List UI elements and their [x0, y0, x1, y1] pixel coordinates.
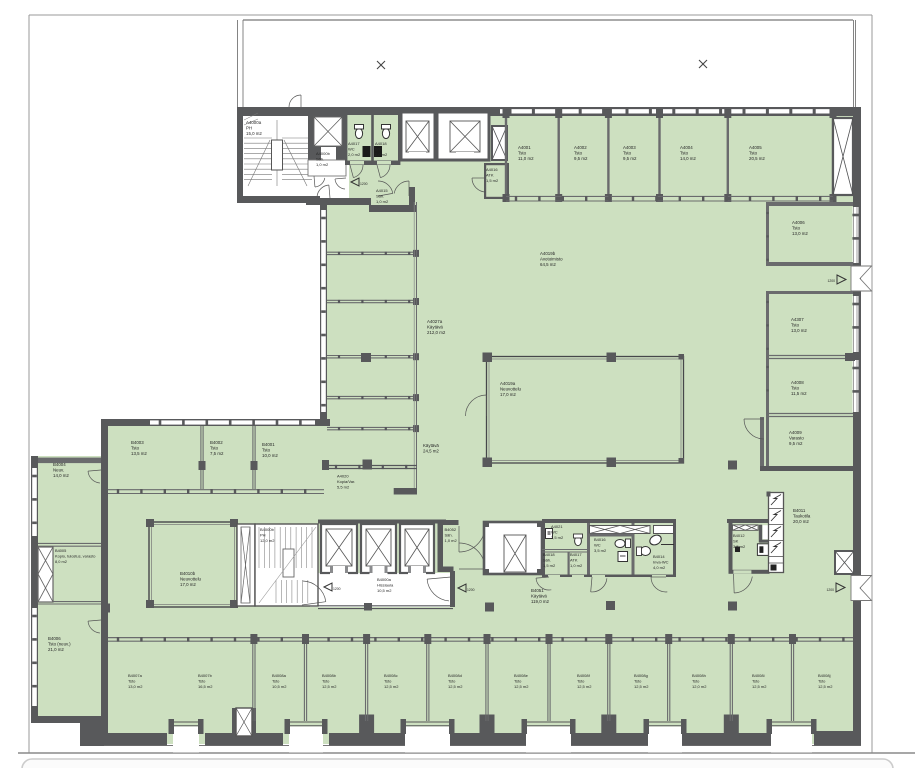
svg-text:A4002: A4002	[574, 145, 587, 150]
svg-text:A4027a: A4027a	[427, 319, 443, 324]
svg-text:Tsto: Tsto	[448, 679, 456, 684]
svg-text:B4008c: B4008c	[384, 673, 398, 678]
svg-text:Tsto: Tsto	[577, 679, 585, 684]
svg-text:2,5 m2: 2,5 m2	[551, 535, 564, 540]
svg-text:B4016: B4016	[594, 537, 606, 542]
svg-text:Säh.: Säh.	[376, 194, 384, 199]
svg-text:13,5 m2: 13,5 m2	[131, 451, 147, 456]
svg-text:WC: WC	[551, 530, 558, 535]
svg-text:10,0 m2: 10,0 m2	[262, 453, 278, 458]
svg-text:B4010b: B4010b	[180, 571, 196, 576]
svg-text:A4000a: A4000a	[246, 120, 262, 125]
svg-text:Neuv.: Neuv.	[53, 468, 64, 473]
svg-text:9,5 m2: 9,5 m2	[789, 441, 803, 446]
svg-text:B4001: B4001	[262, 442, 275, 447]
svg-text:20,0 m2: 20,0 m2	[793, 519, 809, 524]
svg-text:B4004: B4004	[53, 462, 66, 467]
svg-text:Tsto: Tsto	[623, 151, 632, 156]
svg-text:Tsto: Tsto	[574, 151, 583, 156]
svg-text:8,0 m2: 8,0 m2	[55, 559, 67, 564]
svg-text:SK: SK	[733, 539, 739, 544]
svg-text:B4008h: B4008h	[692, 673, 706, 678]
svg-text:Tsto: Tsto	[384, 679, 392, 684]
svg-text:12,5 m2: 12,5 m2	[634, 684, 649, 689]
svg-text:12,5 m2: 12,5 m2	[818, 684, 833, 689]
svg-text:1200: 1200	[360, 182, 368, 186]
svg-text:24,5 m2: 24,5 m2	[423, 449, 439, 454]
svg-text:Tsto: Tsto	[792, 226, 801, 231]
svg-text:Säh.: Säh.	[316, 157, 324, 162]
svg-text:14,0 m2: 14,0 m2	[680, 156, 696, 161]
svg-text:Tsto: Tsto	[749, 151, 758, 156]
svg-text:A4021: A4021	[551, 524, 563, 529]
svg-text:B4008d: B4008d	[448, 673, 462, 678]
svg-text:B4005: B4005	[55, 548, 66, 553]
svg-text:B4000a: B4000a	[377, 577, 392, 582]
svg-text:10,5 m2: 10,5 m2	[272, 684, 287, 689]
svg-text:Tsto: Tsto	[198, 679, 206, 684]
svg-text:16,5 m2: 16,5 m2	[198, 684, 213, 689]
svg-text:A4017: A4017	[348, 141, 360, 146]
svg-text:B4008e: B4008e	[514, 673, 529, 678]
svg-text:A4019a: A4019a	[500, 381, 516, 386]
svg-text:Käytävä: Käytävä	[427, 325, 443, 330]
svg-text:A4015: A4015	[376, 188, 388, 193]
svg-text:B4007b: B4007b	[198, 673, 213, 678]
svg-text:1,0 m2: 1,0 m2	[445, 538, 458, 543]
svg-text:A4009: A4009	[789, 430, 802, 435]
svg-text:64,5 m2: 64,5 m2	[540, 262, 556, 267]
svg-text:Tsto: Tsto	[514, 679, 522, 684]
svg-text:12,5 m2: 12,5 m2	[752, 684, 767, 689]
svg-text:B4018: B4018	[543, 552, 555, 557]
svg-text:B4008g: B4008g	[634, 673, 648, 678]
svg-text:Kopia/Var.: Kopia/Var.	[337, 479, 355, 484]
svg-text:212,0 m2: 212,0 m2	[427, 330, 446, 335]
svg-text:13,0 m2: 13,0 m2	[792, 231, 808, 236]
svg-text:B4051: B4051	[531, 588, 544, 593]
svg-text:Tsto: Tsto	[272, 679, 280, 684]
svg-text:Tsto: Tsto	[692, 679, 700, 684]
svg-text:Taukotila: Taukotila	[793, 514, 811, 519]
svg-text:12,5 m2: 12,5 m2	[322, 684, 337, 689]
svg-text:Neuvottelu: Neuvottelu	[500, 387, 522, 392]
svg-text:A4000b: A4000b	[316, 151, 331, 156]
svg-text:B4000b: B4000b	[260, 527, 275, 532]
svg-text:B4007a: B4007a	[128, 673, 143, 678]
svg-text:WC: WC	[594, 543, 601, 548]
svg-text:2,0 m2: 2,0 m2	[348, 152, 361, 157]
svg-text:Avotoimisto: Avotoimisto	[540, 257, 563, 262]
svg-text:A4019b: A4019b	[540, 251, 556, 256]
svg-text:Tsto: Tsto	[818, 679, 826, 684]
svg-text:Kopio, tulostus, varasto: Kopio, tulostus, varasto	[55, 554, 95, 559]
svg-text:A4008: A4008	[791, 380, 804, 385]
svg-text:Inva-WC: Inva-WC	[653, 560, 669, 565]
svg-text:Säh.: Säh.	[543, 558, 551, 563]
svg-text:B4008j: B4008j	[818, 673, 831, 678]
svg-text:Tsto: Tsto	[791, 386, 800, 391]
svg-text:1200: 1200	[827, 279, 835, 283]
svg-text:B4002: B4002	[210, 440, 223, 445]
svg-text:2,0 m2: 2,0 m2	[375, 152, 388, 157]
svg-text:B4008i: B4008i	[752, 673, 765, 678]
svg-text:1,5 m2: 1,5 m2	[486, 178, 499, 183]
svg-text:20,5 m2: 20,5 m2	[749, 156, 765, 161]
svg-text:Tsto: Tsto	[210, 446, 219, 451]
svg-text:Tsto: Tsto	[322, 679, 330, 684]
svg-text:B4008f: B4008f	[577, 673, 591, 678]
svg-text:PH: PH	[246, 126, 252, 131]
svg-text:Tsto: Tsto	[518, 151, 527, 156]
svg-text:Tsto: Tsto	[752, 679, 760, 684]
svg-text:11,0 m2: 11,0 m2	[518, 156, 534, 161]
svg-text:15,0 m2: 15,0 m2	[246, 131, 262, 136]
svg-text:B4006: B4006	[48, 636, 61, 641]
svg-text:1200: 1200	[826, 588, 834, 592]
svg-text:Tsto: Tsto	[131, 446, 140, 451]
svg-text:ATK: ATK	[486, 173, 494, 178]
svg-text:ATK: ATK	[570, 558, 578, 563]
svg-text:1,0 m2: 1,0 m2	[376, 199, 389, 204]
svg-text:17,0 m2: 17,0 m2	[500, 392, 516, 397]
svg-text:119,0 m2: 119,0 m2	[531, 599, 550, 604]
svg-text:9,5 m2: 9,5 m2	[574, 156, 588, 161]
svg-text:Neuvottelu: Neuvottelu	[180, 577, 202, 582]
svg-text:Tsto (neuv.): Tsto (neuv.)	[48, 642, 71, 647]
svg-text:Tsto: Tsto	[634, 679, 642, 684]
svg-text:A4005: A4005	[749, 145, 762, 150]
svg-text:1200: 1200	[467, 588, 475, 592]
svg-text:9,5 m2: 9,5 m2	[623, 156, 637, 161]
svg-text:Hissiaula: Hissiaula	[377, 583, 394, 588]
svg-text:17,0 m2: 17,0 m2	[180, 582, 196, 587]
svg-text:Tsto: Tsto	[680, 151, 689, 156]
svg-text:7,5 m2: 7,5 m2	[210, 451, 224, 456]
svg-text:B4017: B4017	[570, 552, 582, 557]
svg-text:A4003: A4003	[623, 145, 636, 150]
svg-text:21,0 m2: 21,0 m2	[48, 647, 64, 652]
svg-text:4,0 m2: 4,0 m2	[653, 565, 666, 570]
svg-text:Tsto: Tsto	[791, 323, 800, 328]
svg-text:Varasto: Varasto	[789, 436, 804, 441]
svg-text:14,0 m2: 14,0 m2	[53, 473, 69, 478]
svg-text:1,0 m2: 1,0 m2	[570, 563, 583, 568]
svg-text:Käytävä: Käytävä	[423, 443, 439, 448]
svg-text:WC: WC	[348, 147, 355, 152]
svg-text:11,5 m2: 11,5 m2	[791, 391, 807, 396]
svg-text:A4004: A4004	[680, 145, 693, 150]
svg-text:3,5 m2: 3,5 m2	[733, 544, 746, 549]
svg-text:1,5 m2: 1,5 m2	[543, 563, 556, 568]
svg-text:A4020: A4020	[337, 474, 349, 479]
svg-text:B4008b: B4008b	[322, 673, 337, 678]
svg-text:B4003: B4003	[131, 440, 144, 445]
svg-text:B4008a: B4008a	[272, 673, 287, 678]
svg-text:Säh.: Säh.	[445, 533, 453, 538]
svg-text:13,0 m2: 13,0 m2	[791, 328, 807, 333]
svg-text:Tsto: Tsto	[262, 448, 271, 453]
svg-text:1200: 1200	[333, 587, 341, 591]
svg-text:12,0 m2: 12,0 m2	[692, 684, 707, 689]
svg-text:B4011: B4011	[793, 508, 806, 513]
svg-text:Tsto: Tsto	[128, 679, 136, 684]
svg-text:12,5 m2: 12,5 m2	[577, 684, 592, 689]
svg-text:WC: WC	[375, 147, 382, 152]
svg-text:12,5 m2: 12,5 m2	[514, 684, 529, 689]
svg-text:B4052: B4052	[445, 527, 457, 532]
svg-text:A4307: A4307	[791, 317, 804, 322]
svg-text:Käytävä: Käytävä	[531, 594, 547, 599]
svg-text:PH: PH	[260, 533, 266, 538]
svg-text:13,0 m2: 13,0 m2	[128, 684, 143, 689]
svg-text:A4016: A4016	[486, 167, 498, 172]
svg-text:5,5 m2: 5,5 m2	[337, 485, 350, 490]
svg-text:1,0 m2: 1,0 m2	[316, 162, 329, 167]
svg-text:B4014: B4014	[653, 554, 665, 559]
svg-text:B4012: B4012	[733, 533, 745, 538]
svg-text:3,5 m2: 3,5 m2	[594, 548, 607, 553]
svg-text:10,5 m2: 10,5 m2	[377, 588, 392, 593]
svg-text:12,5 m2: 12,5 m2	[384, 684, 399, 689]
svg-text:A4001: A4001	[518, 145, 531, 150]
svg-text:A4018: A4018	[375, 141, 387, 146]
svg-text:12,0 m2: 12,0 m2	[260, 538, 275, 543]
svg-text:12,5 m2: 12,5 m2	[448, 684, 463, 689]
svg-text:A4006: A4006	[792, 220, 805, 225]
